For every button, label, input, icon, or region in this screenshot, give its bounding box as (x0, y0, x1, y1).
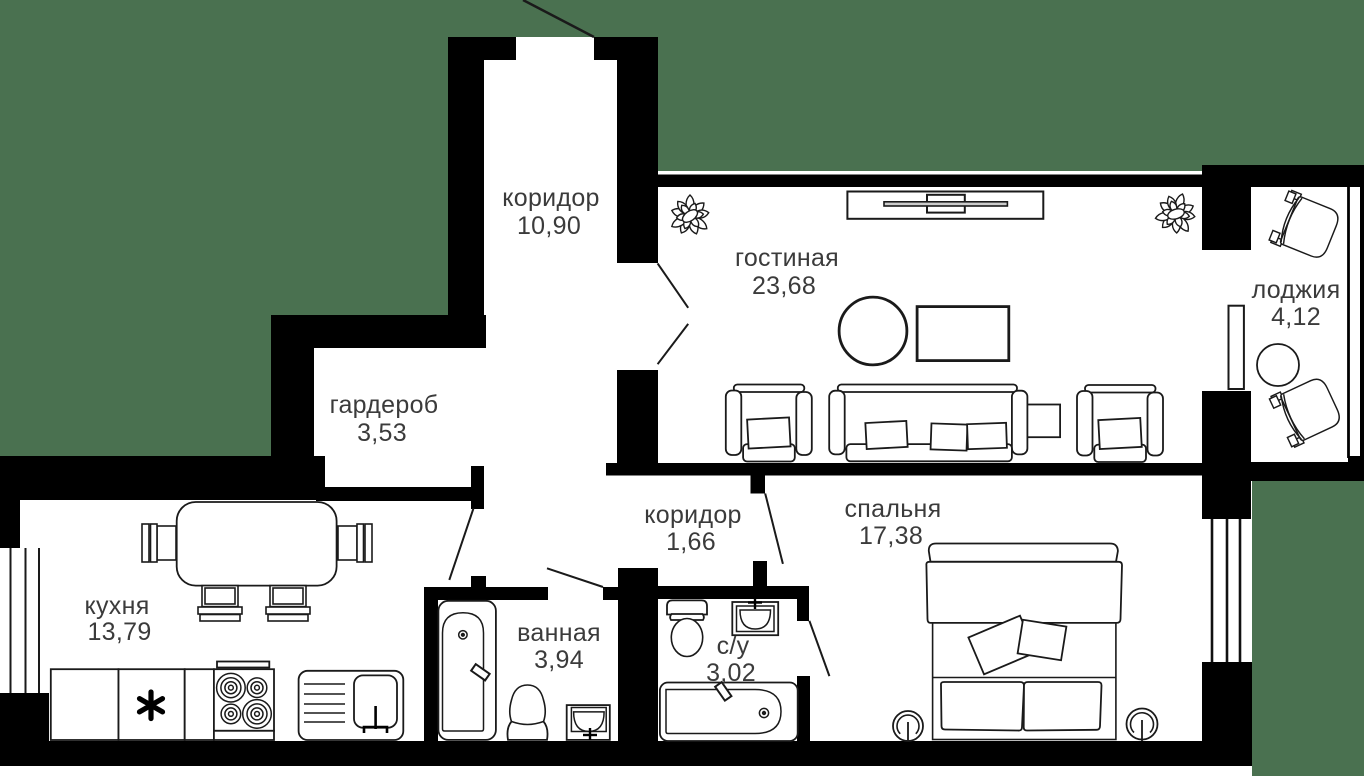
svg-text:лоджия: лоджия (1252, 276, 1341, 304)
svg-text:3,02: 3,02 (706, 659, 756, 687)
svg-text:коридор: коридор (502, 184, 600, 212)
svg-text:гостиная: гостиная (735, 244, 839, 272)
svg-text:3,53: 3,53 (357, 419, 407, 447)
svg-text:10,90: 10,90 (517, 212, 581, 240)
svg-text:4,12: 4,12 (1271, 303, 1321, 331)
svg-text:13,79: 13,79 (87, 618, 151, 646)
svg-text:17,38: 17,38 (859, 522, 923, 550)
svg-text:с/у: с/у (717, 632, 750, 660)
svg-text:спальня: спальня (845, 495, 942, 523)
svg-text:коридор: коридор (644, 501, 742, 529)
svg-text:1,66: 1,66 (666, 528, 716, 556)
svg-text:ванная: ванная (517, 619, 601, 647)
svg-text:23,68: 23,68 (752, 272, 816, 300)
svg-text:кухня: кухня (84, 592, 149, 620)
svg-text:гардероб: гардероб (330, 391, 439, 419)
svg-text:3,94: 3,94 (534, 646, 584, 674)
